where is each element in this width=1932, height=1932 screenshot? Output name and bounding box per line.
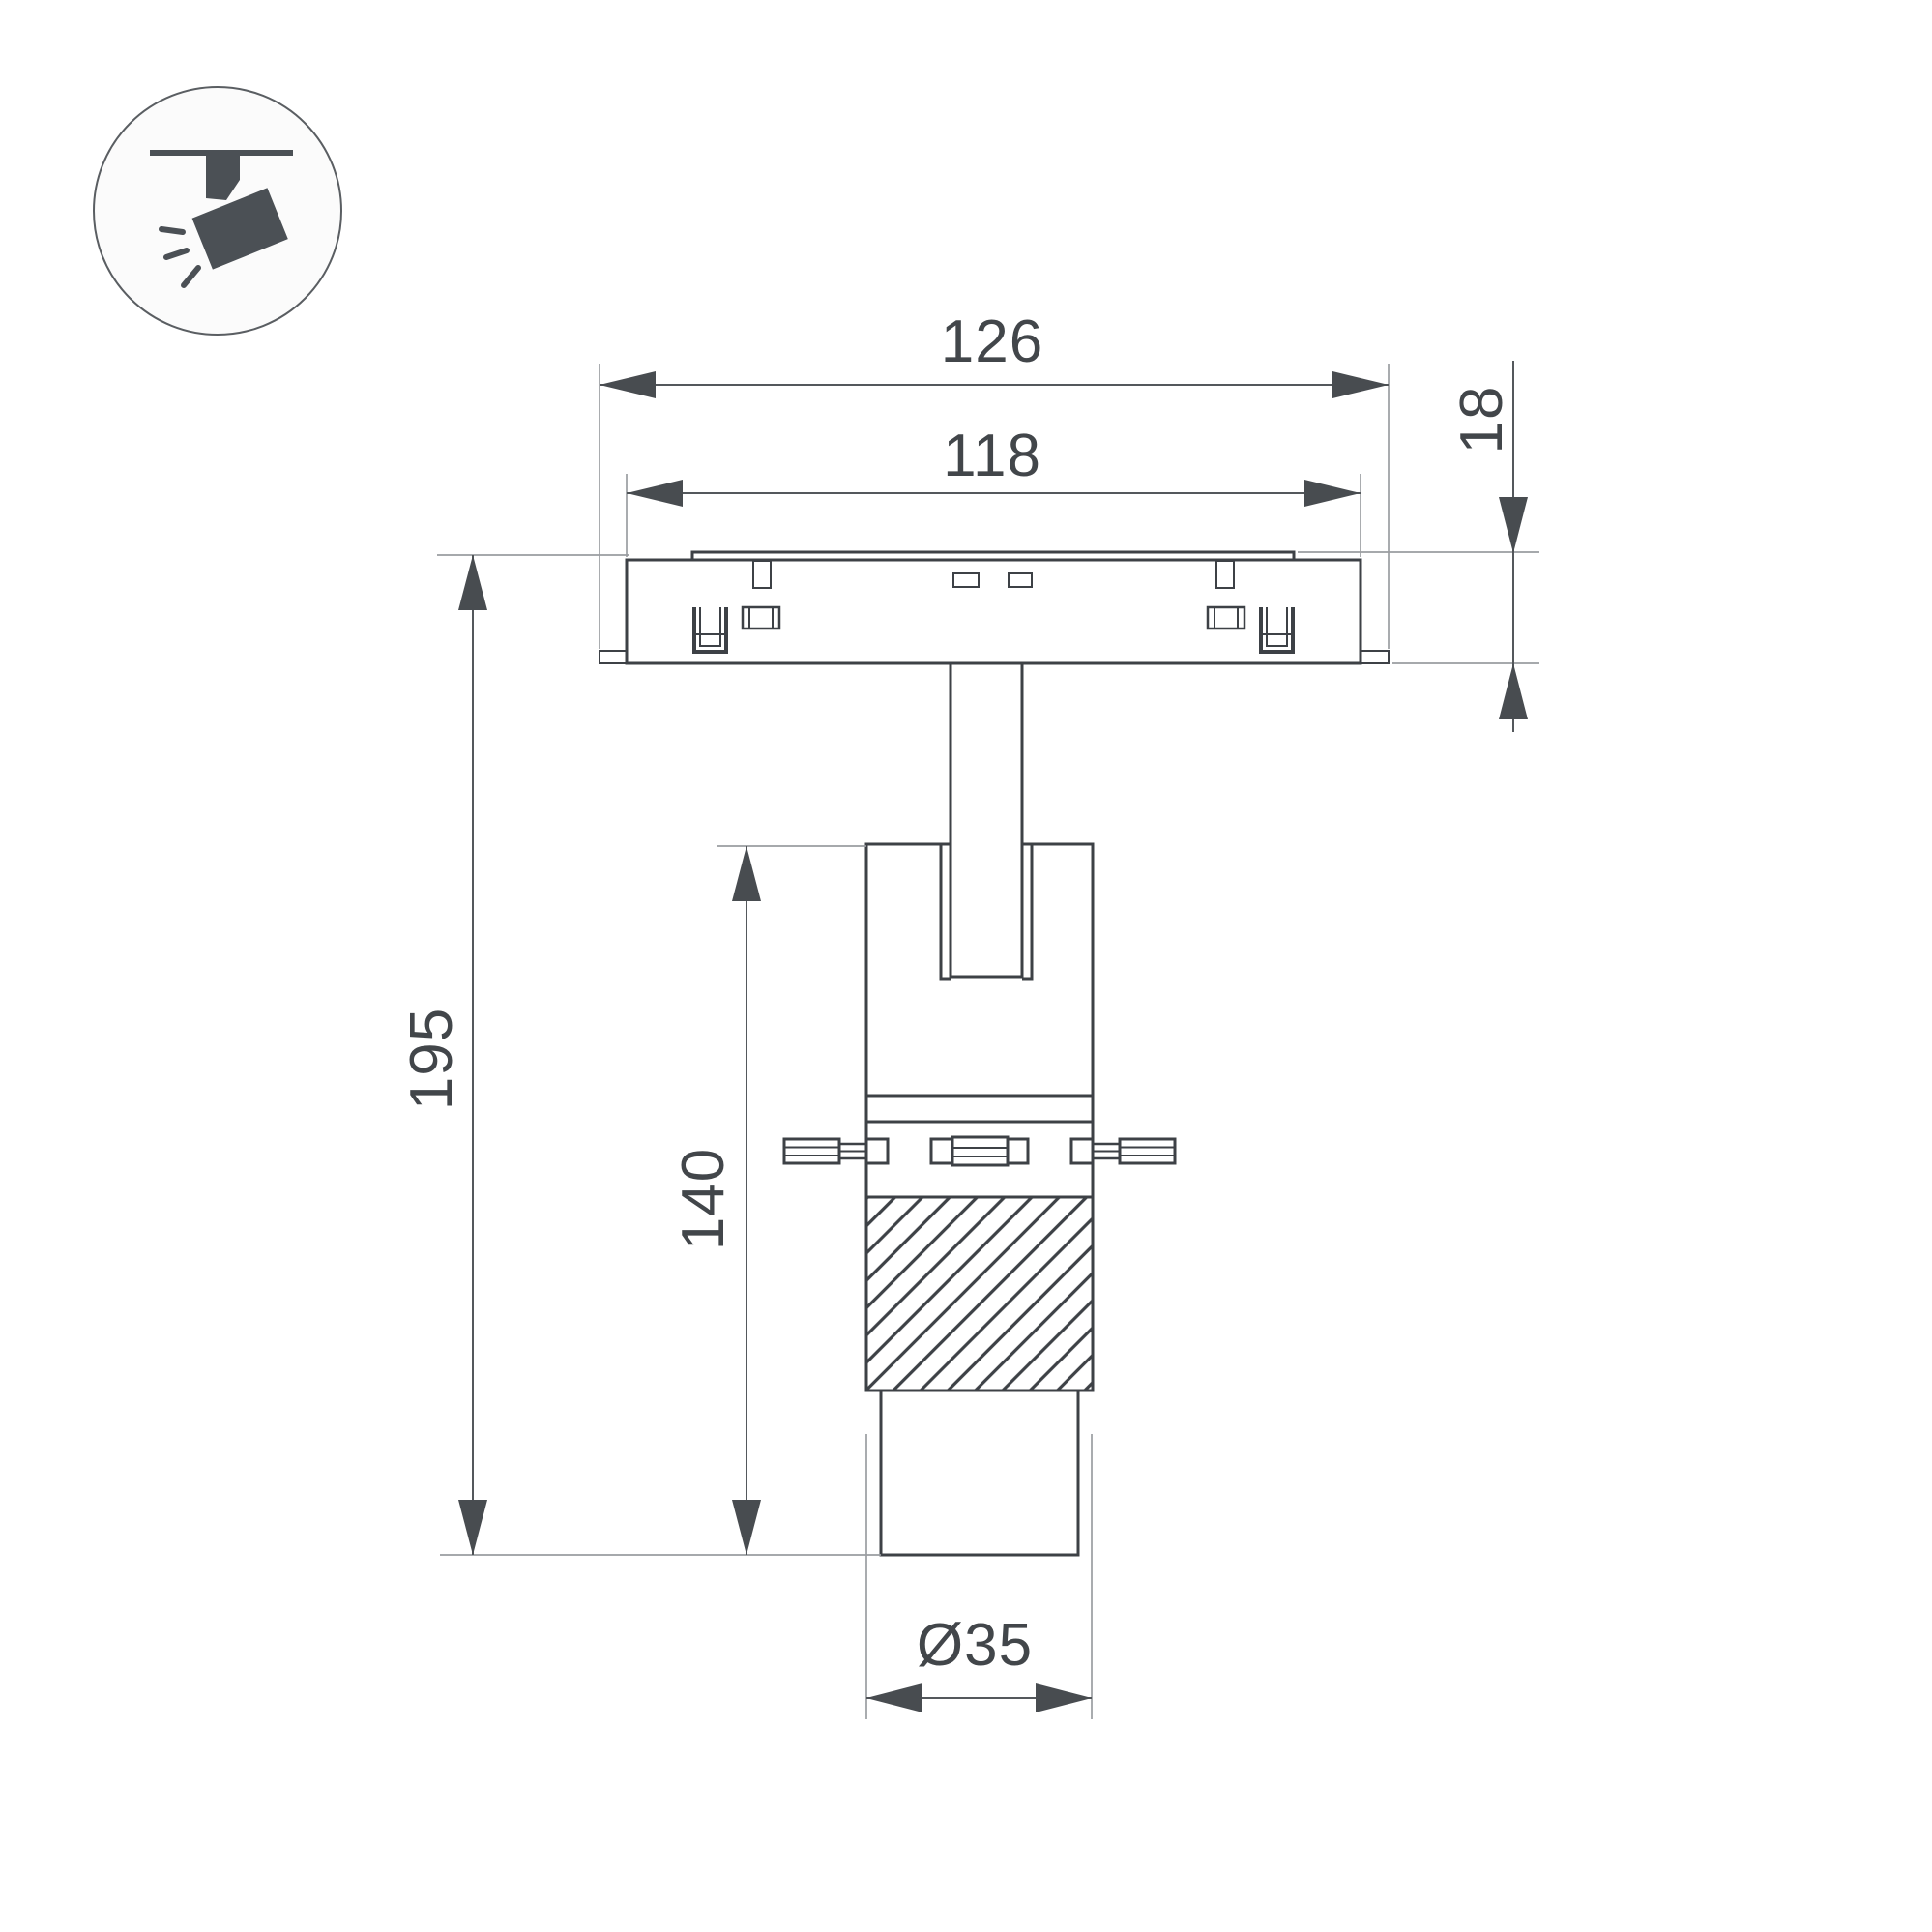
knurled-ring: [866, 1197, 1093, 1390]
drawing-canvas: 126 118 18 195 140: [0, 0, 1932, 1932]
track-contact-left: [743, 607, 779, 629]
dim-label-track-inner-length: 118: [943, 423, 1041, 489]
dim-label-barrel-diameter: Ø35: [917, 1612, 1033, 1679]
track-spotlight-icon: [94, 87, 341, 335]
fixture-body: [784, 663, 1175, 1555]
dimension-body-height: 140: [670, 846, 866, 1555]
lens-barrel: [881, 1390, 1078, 1555]
dim-label-body-height: 140: [670, 1148, 737, 1250]
track-body: [600, 552, 1389, 663]
track-housing: [627, 560, 1361, 663]
dimension-drawing: 126 118 18 195 140: [0, 0, 1932, 1932]
track-notch-left: [753, 561, 771, 588]
track-vent-left: [953, 573, 979, 587]
knob-right: [1120, 1139, 1175, 1163]
track-notch-right: [1216, 561, 1234, 588]
dimension-track-height: 18: [1298, 361, 1539, 732]
knob-left: [784, 1139, 839, 1163]
track-clip-left: [694, 607, 726, 652]
track-clip-right: [1261, 607, 1293, 652]
stem-in-slot: [951, 663, 1022, 977]
dim-label-track-height: 18: [1449, 386, 1515, 454]
track-contact-right: [1208, 607, 1244, 629]
track-vent-right: [1009, 573, 1032, 587]
dimension-total-height: 195: [398, 555, 881, 1555]
dimension-track-inner-length: 118: [627, 423, 1361, 557]
dim-label-total-height: 195: [398, 1008, 465, 1110]
track-end-tab-left: [600, 651, 627, 663]
track-end-tab-right: [1361, 651, 1389, 663]
dim-label-track-length: 126: [941, 308, 1043, 375]
